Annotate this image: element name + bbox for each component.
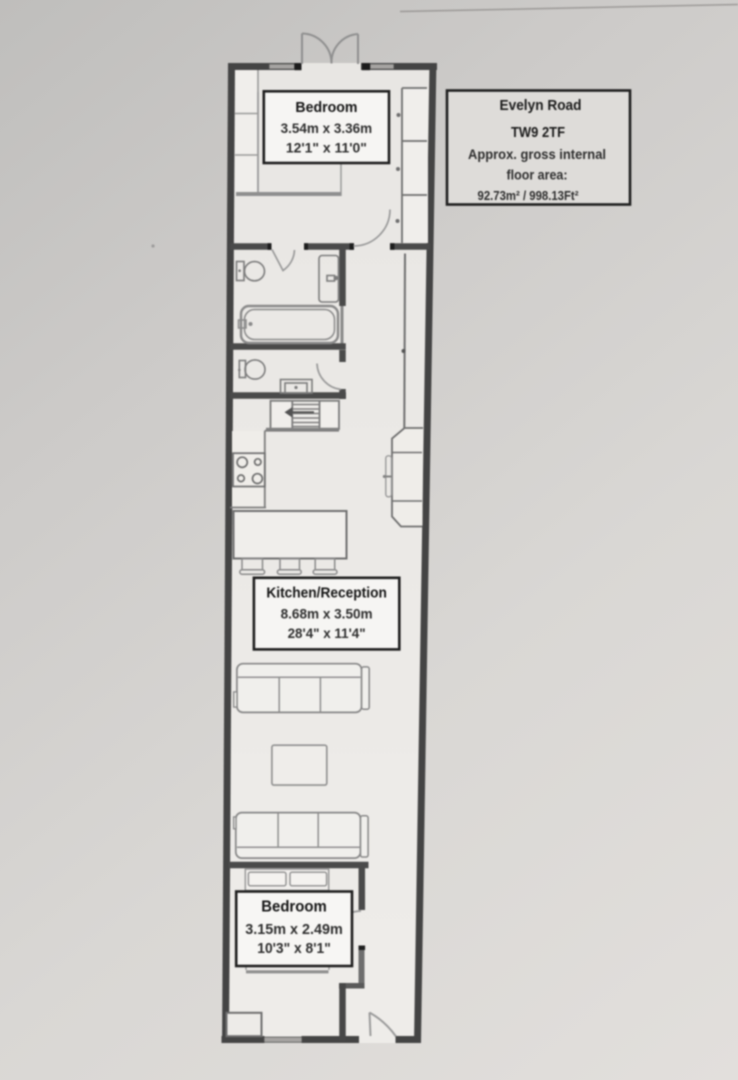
svg-text:Evelyn Road: Evelyn Road	[500, 97, 582, 114]
svg-text:Bedroom: Bedroom	[295, 99, 357, 116]
svg-text:floor area:: floor area:	[507, 168, 568, 183]
svg-text:TW9 2TF: TW9 2TF	[511, 124, 565, 141]
svg-text:Bedroom: Bedroom	[261, 899, 327, 916]
svg-text:12'1" x 11'0": 12'1" x 11'0"	[286, 141, 367, 156]
svg-text:Kitchen/Reception: Kitchen/Reception	[266, 586, 387, 602]
svg-text:Approx. gross internal: Approx. gross internal	[468, 147, 606, 162]
svg-text:28'4" x 11'4": 28'4" x 11'4"	[288, 626, 366, 641]
svg-text:3.54m x 3.36m: 3.54m x 3.36m	[281, 121, 373, 136]
svg-text:10'3" x 8'1": 10'3" x 8'1"	[257, 941, 331, 957]
svg-text:8.68m x 3.50m: 8.68m x 3.50m	[281, 606, 373, 621]
svg-text:92.73m² / 998.13Ft²: 92.73m² / 998.13Ft²	[478, 188, 580, 203]
svg-text:3.15m x 2.49m: 3.15m x 2.49m	[245, 922, 343, 938]
